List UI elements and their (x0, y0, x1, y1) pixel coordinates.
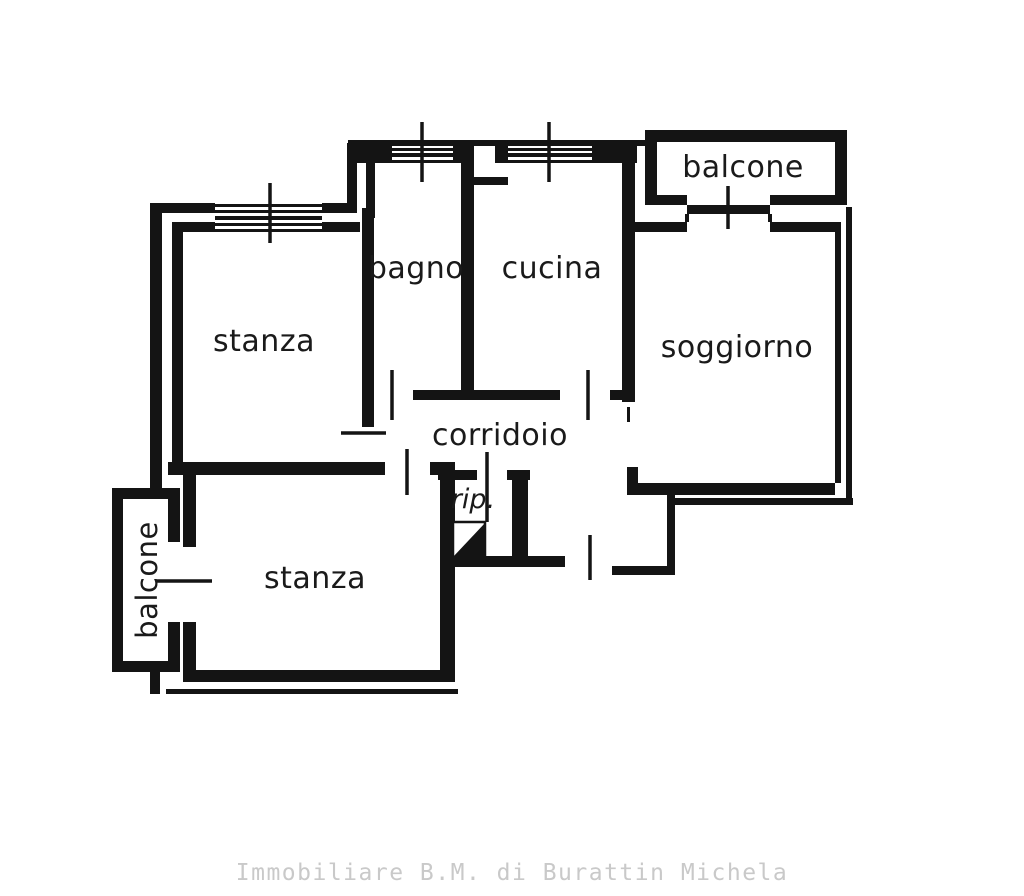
jamb-balcone-right (768, 214, 772, 222)
wall-stanza2-left-upper (183, 475, 196, 547)
label-soggiorno: soggiorno (661, 330, 813, 365)
wall-rip-right (512, 470, 528, 557)
wall-soggiorno-top-right (770, 222, 841, 232)
wall-soggiorno-bottom (627, 483, 835, 495)
wall-facade-seg3 (495, 145, 508, 163)
wall-corridor-bottom-left (168, 462, 385, 475)
wall-balcone-top-w (645, 130, 657, 205)
label-balcone-top: balcone (682, 150, 804, 185)
label-cucina: cucina (502, 251, 603, 286)
wall-cucina-right (622, 140, 635, 402)
wall-entry-right (667, 495, 675, 575)
floor-plan: stanza bagno cucina balcone soggiorno co… (0, 0, 1024, 896)
wall-soggiorno-right-outer (846, 207, 852, 503)
wall-balcone-top-s-right (770, 195, 847, 205)
label-stanza-top: stanza (213, 324, 315, 359)
label-corridoio: corridoio (432, 418, 568, 453)
wall-stanza-top-outer-left (150, 203, 215, 213)
wall-facade-seg2 (453, 145, 474, 163)
outer-line-bottom-right (675, 498, 853, 505)
wall-entry-bottom-right (612, 566, 675, 575)
wall-balcone2-e-lower (168, 622, 180, 672)
wall-facade-seg1 (348, 145, 392, 163)
wall-corridor-top-seg2 (413, 390, 560, 400)
outer-line-bottom-left (166, 689, 458, 694)
wall-stanza2-bottom (196, 670, 455, 682)
jamb-balcone-left (685, 214, 689, 222)
wall-stanza-inner-left (172, 222, 183, 474)
label-stanza-bottom: stanza (264, 561, 366, 596)
shaft-symbol (453, 522, 485, 557)
agency-watermark: Immobiliare B.M. di Burattin Michela (236, 860, 789, 886)
wall-outer-left (150, 203, 162, 488)
wall-balcone2-e-upper (168, 488, 180, 542)
jamb-soggiorno-door (627, 407, 630, 422)
wall-balcone-top-n (645, 130, 847, 142)
wall-balcone-top-s-left (645, 195, 687, 205)
wall-corridor-top-seg3 (610, 390, 622, 400)
stub-below-balcone2 (150, 672, 160, 694)
wall-soggiorno-top-left (630, 222, 687, 232)
wall-balcone-top-e (835, 130, 847, 205)
label-balcone-left: balcone (130, 521, 164, 639)
wall-stanza-top-inner-right (322, 222, 360, 232)
wall-corridor-top-seg1 (362, 390, 372, 400)
wall-stanza2-left-lower (183, 622, 196, 682)
label-rip: rip. (451, 484, 495, 515)
label-bagno: bagno (368, 251, 464, 286)
wall-balcone2-w (112, 488, 123, 672)
wall-soggiorno-right-inner (835, 222, 841, 483)
